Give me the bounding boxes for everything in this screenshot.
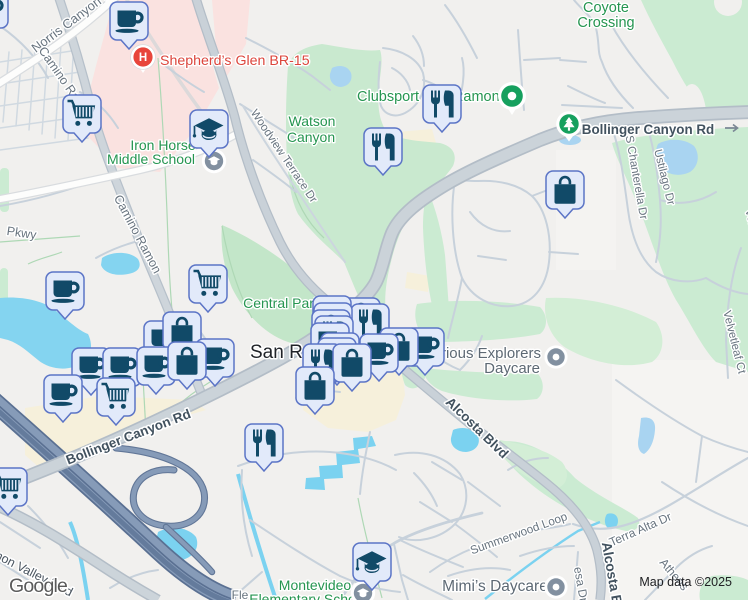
svg-text:Fle: Fle bbox=[232, 588, 249, 600]
svg-text:Bollinger Canyon Rd: Bollinger Canyon Rd bbox=[582, 122, 714, 137]
svg-text:Crossing: Crossing bbox=[577, 15, 634, 31]
svg-text:Daycare: Daycare bbox=[484, 360, 540, 377]
svg-text:Canyon: Canyon bbox=[287, 129, 335, 145]
svg-text:Shepherd’s Glen BR-15: Shepherd’s Glen BR-15 bbox=[160, 53, 310, 69]
svg-text:Middle School: Middle School bbox=[107, 151, 195, 167]
svg-text:Mimi’s Daycare: Mimi’s Daycare bbox=[442, 578, 548, 595]
svg-text:Google: Google bbox=[9, 575, 67, 597]
svg-text:Coyote: Coyote bbox=[583, 0, 629, 16]
svg-text:Watson: Watson bbox=[289, 113, 336, 129]
svg-text:Central Park: Central Park bbox=[243, 295, 322, 311]
svg-text:H: H bbox=[139, 52, 147, 64]
svg-text:Elementary School: Elementary School bbox=[249, 591, 367, 600]
svg-text:Map data ©2025: Map data ©2025 bbox=[639, 575, 732, 589]
